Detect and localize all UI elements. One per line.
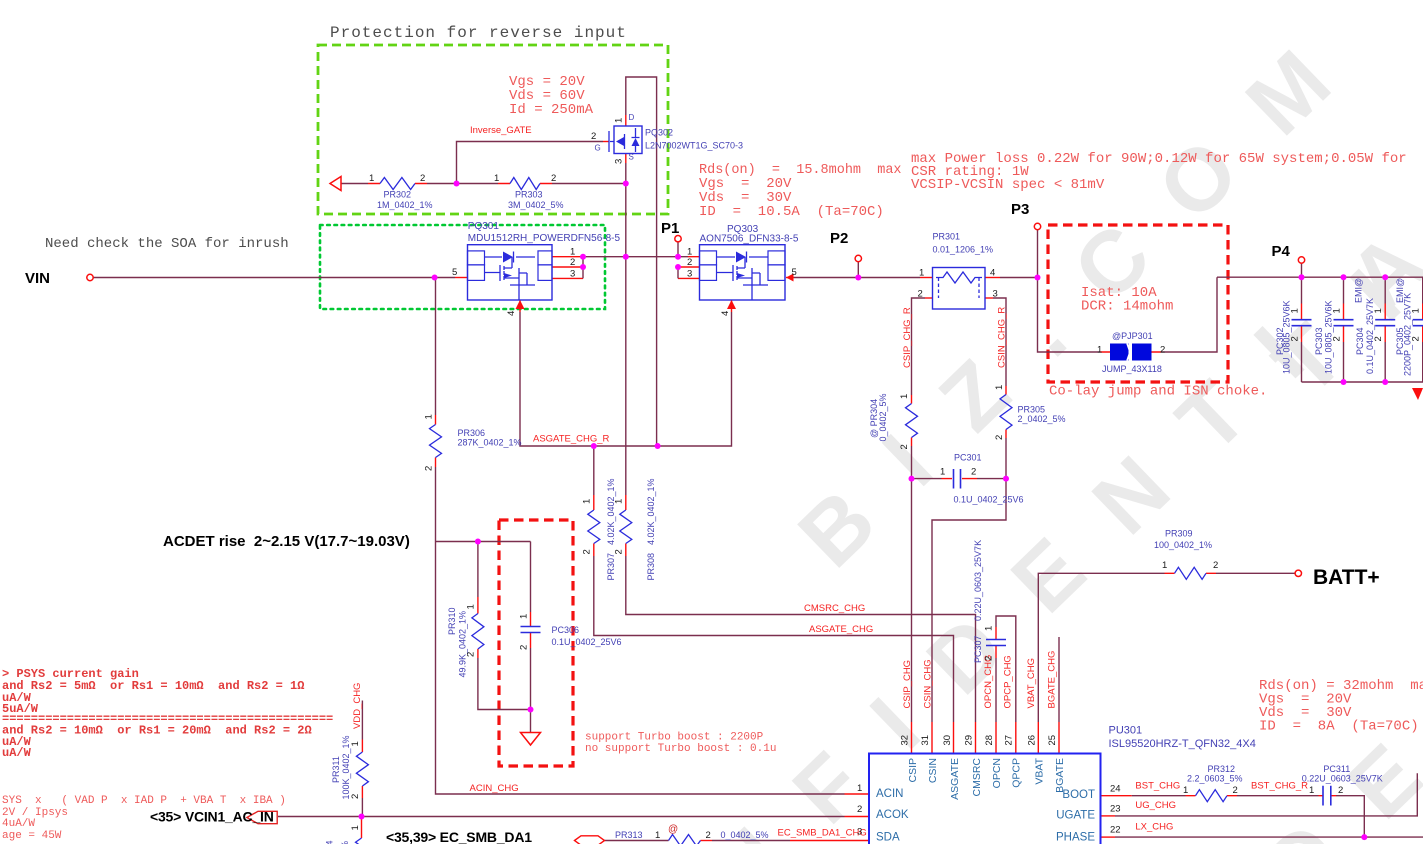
svg-text:EMI@: EMI@: [1395, 278, 1405, 303]
svg-text:OPCN: OPCN: [991, 758, 1003, 788]
svg-text:2: 2: [466, 652, 477, 657]
svg-text:1: 1: [494, 173, 499, 184]
svg-text:VCSIP-VCSIN spec < 81mV: VCSIP-VCSIN spec < 81mV: [911, 177, 1105, 193]
svg-text:CMSRC_CHG: CMSRC_CHG: [804, 603, 865, 614]
svg-text:2_0402_5%: 2_0402_5%: [1018, 414, 1066, 424]
svg-text:PC306: PC306: [552, 625, 580, 635]
svg-text:2200P_0402_25V7K: 2200P_0402_25V7K: [1403, 293, 1413, 376]
svg-text:2: 2: [420, 173, 425, 184]
svg-text:QPCP: QPCP: [1011, 758, 1023, 788]
svg-text:PC303: PC303: [1314, 327, 1324, 355]
svg-text:@: @: [668, 824, 678, 835]
svg-text:4: 4: [720, 311, 731, 316]
svg-text:ACIN_CHG: ACIN_CHG: [470, 783, 519, 794]
svg-text:BOOT: BOOT: [1062, 789, 1095, 801]
svg-text:5: 5: [792, 267, 797, 278]
svg-text:ID = 10.5A (Ta=70C): ID = 10.5A (Ta=70C): [699, 204, 884, 220]
svg-text:1: 1: [466, 604, 477, 609]
svg-text:2: 2: [984, 656, 995, 661]
svg-text:EC_SMB_DA1_CHG: EC_SMB_DA1_CHG: [778, 828, 867, 839]
svg-text:PR306: PR306: [458, 428, 486, 438]
svg-text:PR311: PR311: [331, 756, 341, 783]
svg-text:2: 2: [582, 549, 593, 554]
svg-text:1: 1: [350, 825, 361, 830]
svg-text:BGATE: BGATE: [1054, 758, 1066, 793]
svg-text:2: 2: [519, 645, 530, 650]
svg-text:and Rs2 = 10mΩ or Rs1 = 20mΩ: and Rs2 = 10mΩ or Rs1 = 20mΩ and Rs2 = 2…: [2, 724, 312, 738]
svg-text:ID = 8A (Ta=70C): ID = 8A (Ta=70C): [1259, 719, 1419, 735]
svg-text:LX_CHG: LX_CHG: [1135, 822, 1173, 833]
svg-text:ASGATE: ASGATE: [949, 758, 961, 800]
svg-text:PR313: PR313: [615, 830, 643, 840]
svg-text:0.01_1206_1%: 0.01_1206_1%: [933, 245, 994, 255]
svg-text:PU301: PU301: [1109, 725, 1143, 737]
svg-text:age = 45W: age = 45W: [2, 830, 62, 842]
svg-text:30: 30: [942, 735, 953, 746]
svg-text:27: 27: [1004, 735, 1015, 746]
svg-text:4uA/W: 4uA/W: [2, 818, 35, 830]
svg-text:Protection for reverse input: Protection for reverse input: [330, 24, 627, 42]
svg-text:OPCN_CHG: OPCN_CHG: [983, 655, 994, 709]
svg-text:ASGATE_CHG: ASGATE_CHG: [809, 624, 873, 635]
svg-text:PR302: PR302: [384, 190, 412, 200]
svg-text:2: 2: [1373, 336, 1384, 341]
svg-text:1M_0402_1%: 1M_0402_1%: [377, 200, 433, 210]
svg-text:100_0402_1%: 100_0402_1%: [1154, 540, 1212, 550]
svg-text:0_0402_5%: 0_0402_5%: [721, 830, 769, 840]
svg-text:CSIN_CHG: CSIN_CHG: [923, 659, 934, 708]
svg-text:2: 2: [899, 444, 910, 449]
svg-text:CSIN: CSIN: [927, 758, 939, 783]
svg-text:287K_0402_1%: 287K_0402_1%: [458, 438, 522, 448]
svg-text:3: 3: [614, 159, 625, 164]
svg-text:1: 1: [857, 783, 862, 794]
svg-text:2: 2: [1233, 785, 1238, 796]
svg-text:4: 4: [990, 268, 995, 279]
svg-text:2: 2: [591, 131, 596, 142]
svg-text:PHASE: PHASE: [1056, 832, 1095, 844]
svg-text:PR307: PR307: [606, 553, 616, 581]
svg-text:0_0402_5%: 0_0402_5%: [878, 393, 888, 441]
svg-text:P1: P1: [661, 220, 679, 237]
svg-text:1: 1: [1290, 308, 1301, 313]
svg-text:2: 2: [551, 173, 556, 184]
svg-text:2: 2: [706, 830, 711, 841]
svg-text:28: 28: [984, 735, 995, 746]
svg-text:1: 1: [984, 626, 995, 631]
svg-text:1: 1: [350, 741, 361, 746]
svg-text:VBAT: VBAT: [1033, 757, 1045, 784]
svg-text:VBAT_CHG: VBAT_CHG: [1026, 658, 1037, 709]
svg-text:Id = 250mA: Id = 250mA: [509, 102, 594, 118]
svg-text:MDU1512RH_POWERDFN56-8-5: MDU1512RH_POWERDFN56-8-5: [468, 233, 621, 244]
svg-text:0.22U_0603_25V7K: 0.22U_0603_25V7K: [973, 540, 983, 621]
svg-text:1: 1: [1183, 785, 1188, 796]
svg-text:PC301: PC301: [954, 453, 982, 463]
svg-text:2: 2: [1338, 785, 1343, 796]
svg-text:VIN: VIN: [25, 270, 50, 287]
svg-text:1: 1: [570, 247, 575, 258]
svg-text:PC304: PC304: [1355, 327, 1365, 355]
svg-text:0.1U_0402_25V6: 0.1U_0402_25V6: [954, 495, 1024, 505]
svg-text:2: 2: [1160, 345, 1165, 356]
svg-text:PR301: PR301: [933, 232, 961, 242]
svg-text:24: 24: [1110, 784, 1121, 795]
svg-text:UGATE: UGATE: [1056, 810, 1095, 822]
svg-text:PR314: PR314: [325, 840, 335, 844]
svg-text:D: D: [629, 113, 635, 122]
svg-text:Need check the SOA for inrush: Need check the SOA for inrush: [45, 236, 289, 252]
svg-text:1: 1: [1162, 560, 1167, 571]
svg-text:4.02K_0402_1%: 4.02K_0402_1%: [646, 478, 656, 545]
svg-text:JUMP_43X118: JUMP_43X118: [1102, 364, 1162, 374]
svg-text:4: 4: [506, 311, 517, 316]
svg-text:CSIP_CHG_R: CSIP_CHG_R: [902, 307, 913, 368]
svg-text:PR310: PR310: [447, 607, 457, 635]
svg-text:Inverse_GATE: Inverse_GATE: [470, 125, 532, 136]
svg-text:2: 2: [1411, 336, 1422, 341]
svg-text:22: 22: [1110, 825, 1121, 836]
svg-text:SYS x ( VAD P x IAD P + V: SYS x ( VAD P x IAD P + VBA T x IBA ): [2, 795, 286, 807]
svg-text:P4: P4: [1272, 243, 1291, 260]
svg-text:G: G: [595, 144, 601, 153]
svg-text:EMI@: EMI@: [1354, 278, 1364, 303]
svg-text:26: 26: [1027, 735, 1038, 746]
svg-text:PC311: PC311: [1323, 764, 1350, 774]
svg-text:PR312: PR312: [1208, 764, 1236, 774]
svg-text:2: 2: [424, 466, 435, 471]
svg-text:3: 3: [687, 269, 692, 280]
svg-text:2: 2: [687, 257, 692, 268]
svg-text:29: 29: [964, 735, 975, 746]
svg-text:ASGATE_CHG_R: ASGATE_CHG_R: [533, 434, 610, 445]
svg-text:2V / Ipsys: 2V / Ipsys: [2, 807, 68, 819]
svg-text:PQ301: PQ301: [468, 221, 500, 232]
svg-text:<35> VCIN1_AC_IN: <35> VCIN1_AC_IN: [150, 809, 274, 825]
svg-text:AON7506_DFN33-8-5: AON7506_DFN33-8-5: [700, 234, 799, 245]
svg-text:3: 3: [993, 289, 998, 300]
svg-text:DCR: 14mohm: DCR: 14mohm: [1081, 299, 1173, 315]
svg-text:2: 2: [350, 794, 361, 799]
svg-text:5: 5: [452, 267, 457, 278]
svg-text:0.1U_0402_25V6: 0.1U_0402_25V6: [552, 637, 622, 647]
svg-text:1: 1: [687, 247, 692, 258]
svg-text:PR309: PR309: [1165, 529, 1193, 539]
svg-text:1: 1: [519, 614, 530, 619]
svg-text:no support Turbo boost : 0.1u: no support Turbo boost : 0.1u: [585, 743, 776, 755]
svg-text:2: 2: [1213, 560, 1218, 571]
svg-text:ACIN: ACIN: [876, 788, 903, 800]
svg-text:3: 3: [857, 827, 862, 838]
svg-text:1: 1: [1332, 308, 1343, 313]
svg-text:BST_CHG_R: BST_CHG_R: [1251, 781, 1308, 792]
svg-text:0.22U_0603_25V7K: 0.22U_0603_25V7K: [1302, 774, 1383, 784]
svg-text:3M_0402_5%: 3M_0402_5%: [508, 200, 564, 210]
svg-text:1: 1: [614, 499, 625, 504]
svg-text:ACDET rise 2~2.15 V(17.7~19.0: ACDET rise 2~2.15 V(17.7~19.03V): [163, 533, 410, 550]
svg-text:23: 23: [1110, 804, 1121, 815]
svg-text:3: 3: [570, 269, 575, 280]
svg-text:1: 1: [994, 385, 1005, 390]
svg-text:PR308: PR308: [646, 553, 656, 581]
svg-text:1: 1: [940, 467, 945, 478]
svg-text:VDD_CHG: VDD_CHG: [352, 683, 363, 729]
svg-text:PQ302: PQ302: [645, 128, 673, 138]
svg-text:2: 2: [1332, 336, 1343, 341]
svg-text:OPCP_CHG: OPCP_CHG: [1003, 655, 1014, 708]
svg-text:1: 1: [655, 830, 660, 841]
svg-text:CMSRC: CMSRC: [971, 758, 983, 797]
svg-text:1: 1: [614, 118, 625, 123]
svg-text:<35,39> EC_SMB_DA1: <35,39> EC_SMB_DA1: [386, 829, 532, 844]
svg-text:and Rs2 = 5mΩ or Rs1 = 10mΩ: and Rs2 = 5mΩ or Rs1 = 10mΩ and Rs2 = 1Ω: [2, 679, 304, 693]
svg-text:CSIN_CHG_R: CSIN_CHG_R: [997, 307, 1008, 368]
svg-text:support Turbo boost : 2200P: support Turbo boost : 2200P: [585, 732, 764, 744]
svg-text:BST_CHG: BST_CHG: [1135, 781, 1180, 792]
svg-text:1: 1: [919, 268, 924, 279]
svg-text:1: 1: [899, 394, 910, 399]
svg-text:2: 2: [994, 435, 1005, 440]
svg-text:L2N7002WT1G_SC70-3: L2N7002WT1G_SC70-3: [645, 141, 743, 151]
svg-text:BGATE_CHG: BGATE_CHG: [1047, 651, 1058, 709]
svg-text:BATT+: BATT+: [1313, 566, 1380, 589]
svg-text:UG_CHG: UG_CHG: [1135, 800, 1176, 811]
svg-text:CSIP: CSIP: [907, 758, 919, 783]
svg-text:@PJP301: @PJP301: [1112, 331, 1153, 341]
svg-text:2: 2: [614, 549, 625, 554]
svg-text:2: 2: [570, 257, 575, 268]
svg-text:31: 31: [920, 735, 931, 746]
svg-text:P3: P3: [1011, 201, 1029, 218]
svg-text:PR305: PR305: [1018, 405, 1046, 415]
svg-text:2: 2: [918, 289, 923, 300]
svg-text:SDA: SDA: [876, 832, 900, 844]
svg-text:PC307: PC307: [973, 635, 983, 663]
svg-text:uA/W: uA/W: [2, 746, 32, 760]
svg-text:2: 2: [857, 804, 862, 815]
svg-text:2.2_0603_5%: 2.2_0603_5%: [1187, 774, 1243, 784]
svg-text:1: 1: [1309, 785, 1314, 796]
svg-text:PR303: PR303: [515, 190, 543, 200]
svg-text:49.9K_0402_1%: 49.9K_0402_1%: [458, 611, 468, 678]
svg-text:25: 25: [1047, 735, 1058, 746]
svg-text:1: 1: [369, 173, 374, 184]
svg-text:ACOK: ACOK: [876, 809, 909, 821]
svg-text:2: 2: [1290, 336, 1301, 341]
svg-text:P2: P2: [830, 230, 848, 247]
svg-text:1: 1: [424, 414, 435, 419]
svg-text:4.02K_0402_1%: 4.02K_0402_1%: [606, 478, 616, 545]
svg-text:2: 2: [971, 467, 976, 478]
svg-text:1: 1: [582, 499, 593, 504]
svg-text:Co-lay jump and ISN choke.: Co-lay jump and ISN choke.: [1049, 384, 1267, 400]
svg-text:CSIP_CHG: CSIP_CHG: [902, 660, 913, 709]
svg-text:S: S: [629, 153, 634, 162]
svg-text:ISL95520HRZ-T_QFN32_4X4: ISL95520HRZ-T_QFN32_4X4: [1109, 738, 1256, 750]
svg-text:1: 1: [1411, 308, 1422, 313]
svg-text:1: 1: [1097, 345, 1102, 356]
svg-text:1: 1: [1373, 308, 1384, 313]
svg-text:32: 32: [900, 735, 911, 746]
